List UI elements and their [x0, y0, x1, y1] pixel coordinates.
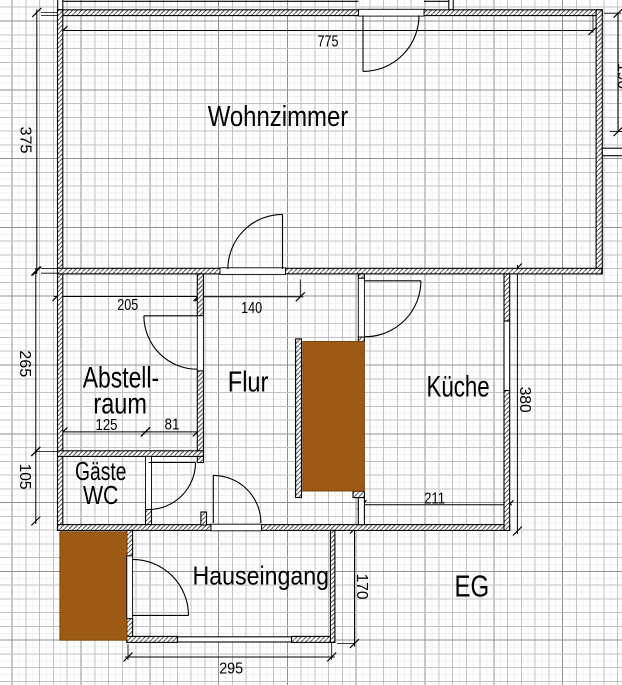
- svg-text:Küche: Küche: [427, 371, 490, 404]
- svg-text:775: 775: [318, 34, 339, 51]
- svg-text:EG: EG: [455, 568, 490, 603]
- svg-text:Wohnzimmer: Wohnzimmer: [208, 101, 349, 133]
- svg-text:295: 295: [219, 661, 243, 678]
- svg-text:375: 375: [17, 127, 34, 154]
- svg-text:380: 380: [516, 387, 533, 413]
- svg-text:211: 211: [424, 490, 445, 507]
- svg-text:raum: raum: [93, 388, 146, 421]
- svg-text:265: 265: [16, 350, 33, 377]
- svg-text:170: 170: [353, 574, 370, 600]
- svg-text:Flur: Flur: [228, 367, 269, 399]
- svg-text:Hauseingang: Hauseingang: [193, 560, 330, 590]
- svg-text:205: 205: [117, 297, 138, 314]
- svg-text:190: 190: [614, 63, 622, 89]
- svg-text:105: 105: [16, 464, 33, 490]
- svg-text:81: 81: [165, 416, 180, 433]
- svg-text:140: 140: [241, 300, 262, 317]
- svg-text:WC: WC: [83, 480, 118, 510]
